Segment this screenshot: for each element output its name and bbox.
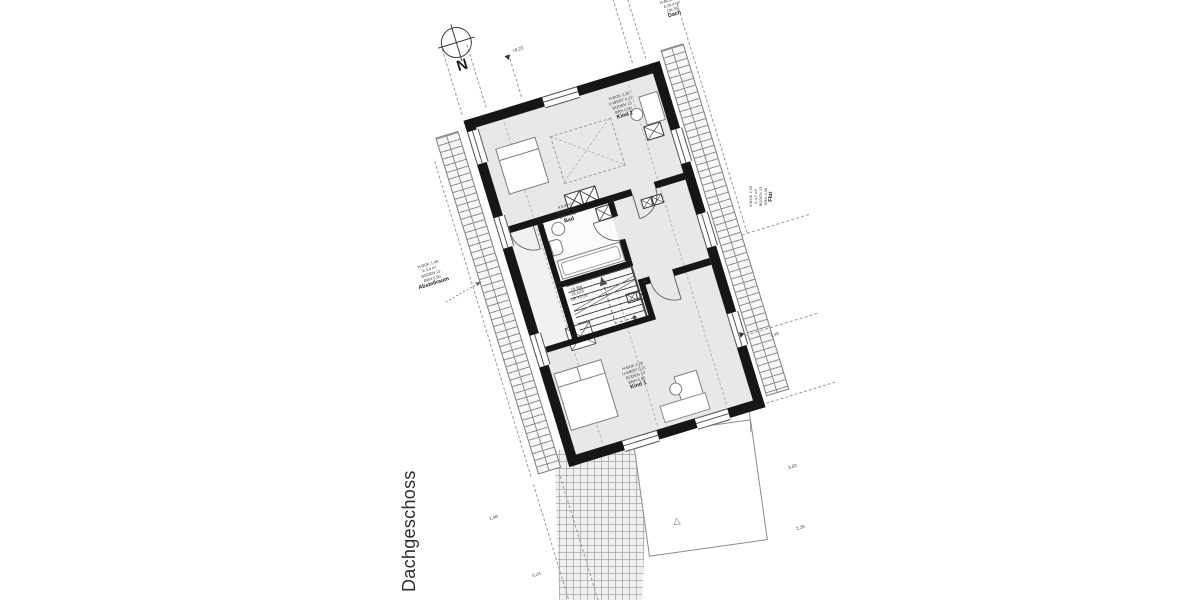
room-stamp-dach: H-BOK 2,26 A 28,4 m² DN 38° Dach <box>646 0 700 26</box>
door-leaf <box>533 226 540 249</box>
building-plan: +8,25 N H-BOK 2,26 U-WERT 0,21 BODEN 13 … <box>464 61 766 467</box>
dimension-label: 4,49 <box>769 331 779 338</box>
dimension-label: 1,48 <box>488 514 498 521</box>
room-stamp-abstellraum: H-BOK 1,48 A 3,4 m² BODEN 13 BRH 0,90 Ab… <box>406 255 456 294</box>
extension-line <box>509 58 522 97</box>
dimension-label: 2,26 <box>795 524 805 531</box>
door-leaf <box>674 276 681 299</box>
door-arc <box>510 226 540 256</box>
door-arc <box>651 276 681 306</box>
sheet-title: Dachgeschoss <box>399 470 420 592</box>
stair-arrow-icon <box>597 275 607 286</box>
floorplan-sheet: △ <box>0 0 1200 600</box>
door-leaf <box>593 216 616 223</box>
door-arc <box>633 189 663 219</box>
dimension-label: 0,24 <box>531 571 541 578</box>
room-name: Flur <box>768 170 775 224</box>
door-arc <box>593 216 623 246</box>
level-value: +8,25 <box>512 45 524 53</box>
room-stamp-flur: H-BOK 2,26 A 4,7 m² BODEN 13 BRH 0,90 Fl… <box>748 170 775 224</box>
level-triangle-icon: △ <box>673 515 681 527</box>
stair-walkline <box>603 277 634 323</box>
door-leaf <box>633 196 640 219</box>
dimension-label: 3,63 <box>787 463 797 470</box>
